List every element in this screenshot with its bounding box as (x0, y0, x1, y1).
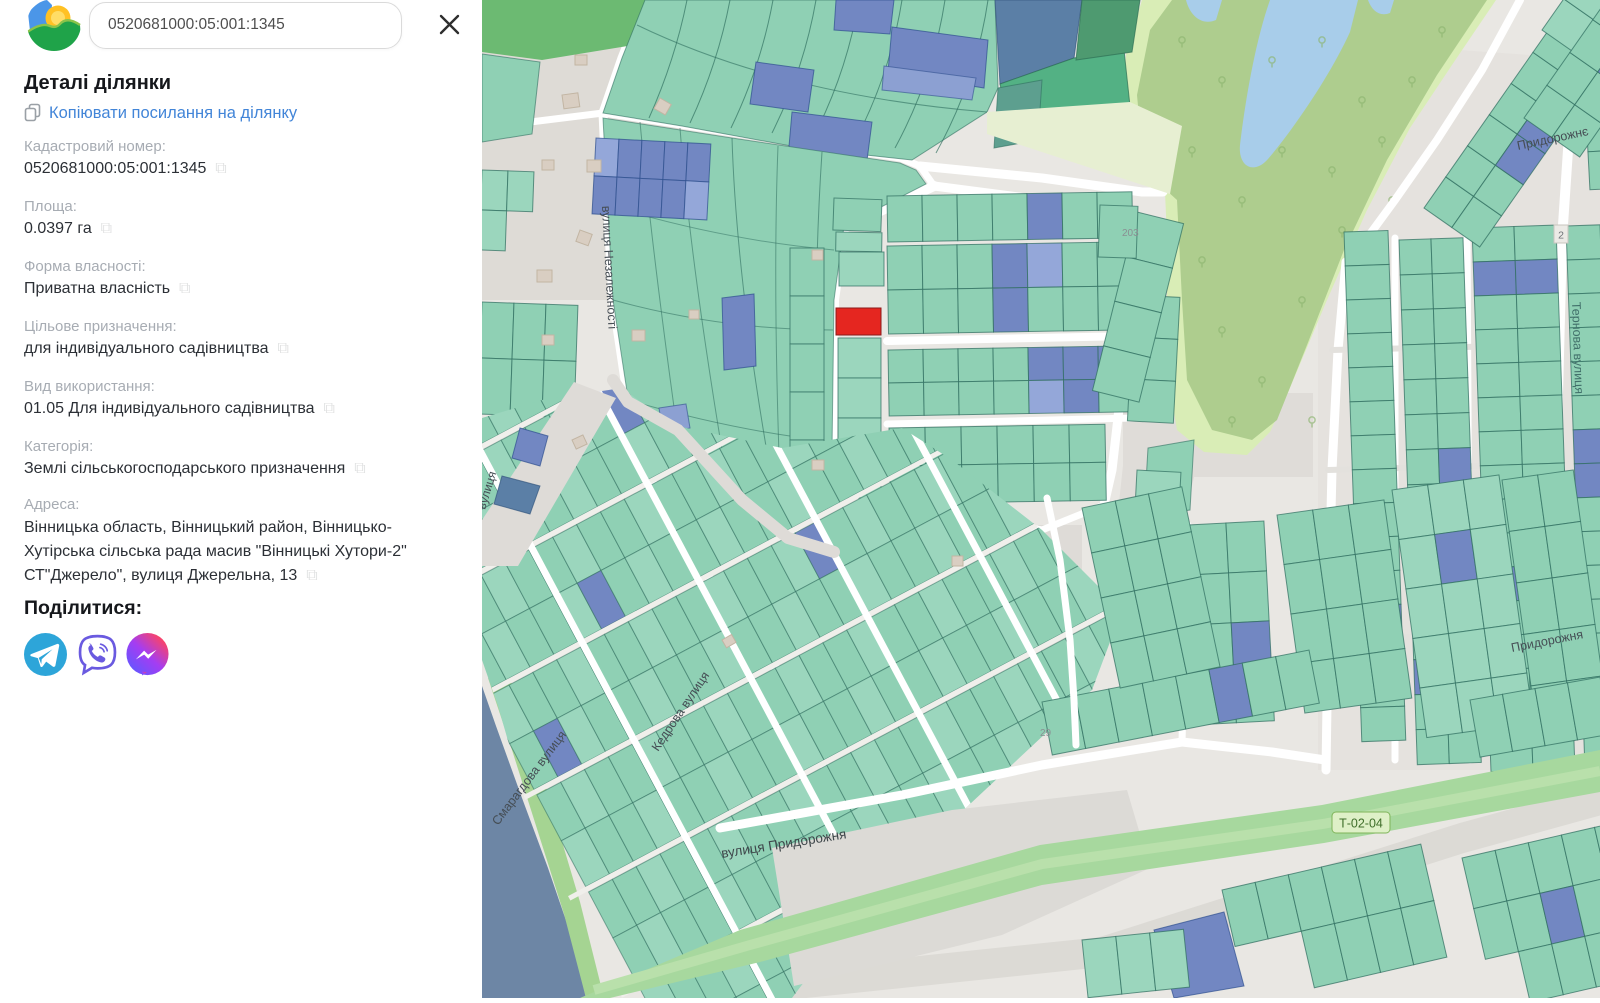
svg-text:203: 203 (1122, 228, 1139, 239)
svg-text:29: 29 (1040, 728, 1052, 739)
svg-text:2: 2 (1558, 230, 1564, 242)
svg-text:Т-02-04: Т-02-04 (1339, 817, 1383, 831)
